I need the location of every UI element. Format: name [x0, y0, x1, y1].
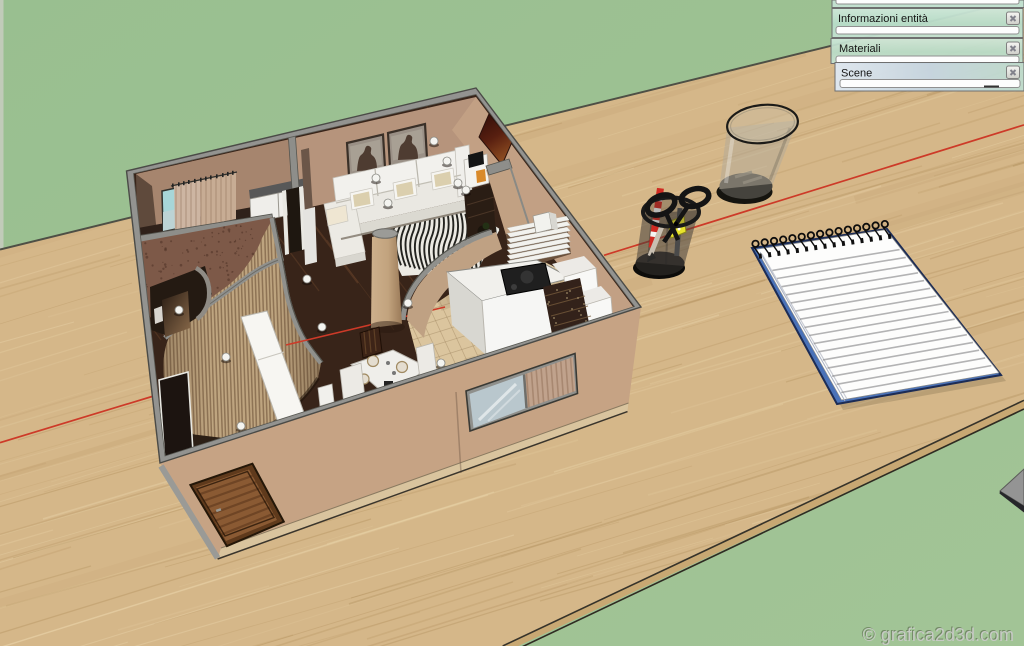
svg-text:Scene: Scene [841, 68, 872, 80]
svg-text:Materiali: Materiali [839, 43, 881, 55]
svg-text:© grafica2d3d.com: © grafica2d3d.com [863, 625, 1014, 645]
svg-text:Informazioni entità: Informazioni entità [838, 13, 929, 25]
